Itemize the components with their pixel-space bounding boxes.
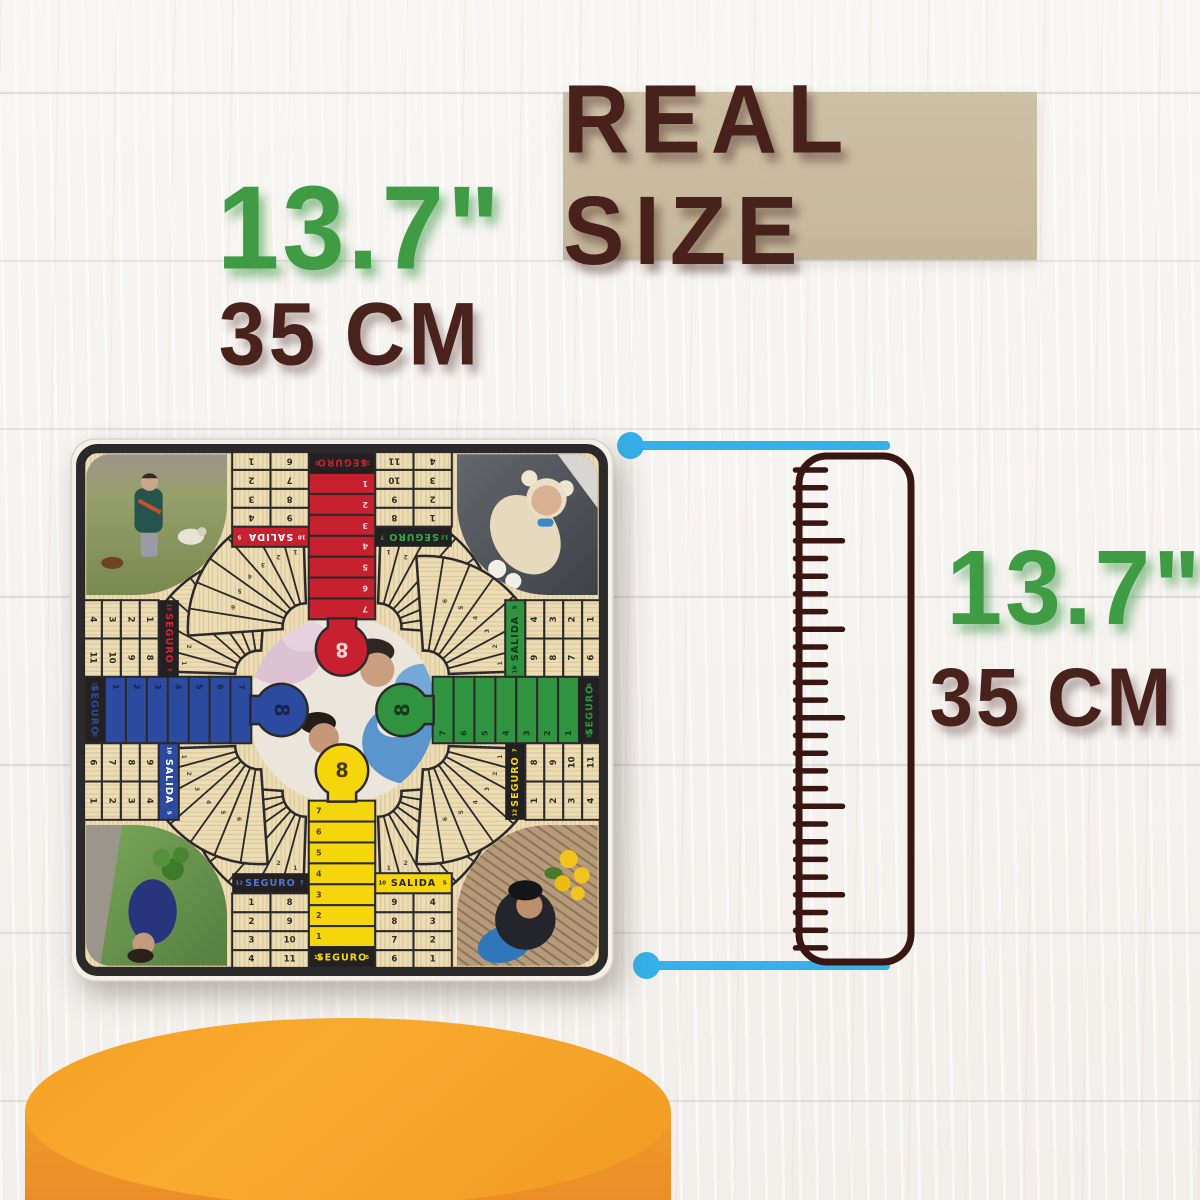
board-label: 2 (248, 474, 254, 484)
board-label: 6 (442, 817, 449, 821)
board-label: 4 (472, 800, 479, 804)
board-label: 5 (315, 459, 319, 465)
board-label: 3 (316, 890, 322, 899)
board-label: 6 (442, 599, 449, 603)
board-label: 1 (248, 898, 254, 908)
board-label: 6 (391, 955, 397, 965)
board-label: 5 (362, 563, 368, 572)
board-label: 2 (316, 911, 322, 920)
board-label: 7 (287, 474, 293, 484)
width-cm-label: 35 CM (200, 289, 500, 378)
board-label: 6 (587, 655, 597, 661)
board-label: 8 (270, 703, 293, 716)
board-label: 8 (125, 759, 135, 765)
board-label: 2 (125, 616, 135, 622)
board-label: 5 (587, 683, 593, 687)
board-label: 1 (497, 755, 504, 759)
board-label: 6 (287, 455, 293, 465)
height-inches-label: 13.7" (925, 535, 1200, 641)
board-label: 2 (568, 616, 578, 622)
board-label: 2 (492, 771, 499, 775)
board-label: 5 (316, 848, 322, 857)
board-label: 1 (316, 932, 322, 941)
board-label: 4 (316, 869, 322, 878)
board-label: 4 (362, 542, 368, 551)
board-label: 7 (106, 759, 116, 765)
board-label: 6 (460, 730, 469, 736)
board-label: 9 (287, 917, 293, 927)
board-label: 8 (530, 759, 540, 765)
board-label: 3 (568, 798, 578, 804)
board-label: 1 (293, 865, 297, 872)
board-label: SEGURO (317, 952, 368, 963)
board-label: 5 (237, 534, 241, 540)
board-label: 5 (458, 606, 465, 610)
podium-graphic (20, 1014, 676, 1200)
board-label: 12 (166, 603, 172, 611)
board-label: 2 (248, 917, 254, 927)
board-label: 9 (144, 759, 154, 765)
board-label: 2 (492, 644, 499, 648)
board-label: 7 (391, 936, 397, 946)
board-label: 8 (391, 703, 414, 716)
board-label: 11 (87, 652, 97, 664)
board-label: 4 (530, 616, 540, 622)
board-label: 7 (380, 534, 384, 540)
board-label: SALIDA (510, 616, 521, 661)
board-label: 3 (549, 616, 559, 622)
board-label: 6 (87, 759, 97, 765)
board-label: 3 (125, 798, 135, 804)
board-label: SEGURO (388, 531, 439, 542)
board-label: 8 (335, 638, 348, 661)
board-label: 9 (125, 655, 135, 661)
product-size-infographic: REAL SIZE 13.7" 35 CM 13.7" 35 CM (0, 0, 1200, 1200)
board-label: 1 (248, 455, 254, 465)
real-size-title: REAL SIZE (563, 65, 1037, 288)
board-label: 1 (430, 955, 436, 965)
board-label: 2 (132, 684, 141, 690)
board-label: 3 (484, 787, 491, 791)
board-label: 3 (193, 787, 200, 791)
board-label: 1 (144, 616, 154, 622)
board-label: 4 (144, 798, 154, 804)
board-label: 1 (111, 684, 120, 690)
board-label: 2 (549, 798, 559, 804)
board-label: 10 (568, 756, 578, 768)
board-label: 3 (362, 521, 368, 530)
board-label: 2 (276, 553, 280, 560)
board-label: 8 (287, 493, 293, 503)
board-label: 7 (362, 604, 368, 613)
board-label: 1 (362, 479, 368, 488)
board-label: 8 (391, 512, 397, 522)
board-label: 4 (430, 455, 436, 465)
board-label: 3 (248, 493, 254, 503)
board-label: 7 (166, 668, 172, 672)
board-label: 4 (501, 730, 510, 736)
board-label: 8 (287, 898, 293, 908)
board-label: 1 (587, 616, 597, 622)
board-label: 2 (276, 860, 280, 867)
board-label: 7 (300, 880, 304, 886)
board-label: 9 (391, 898, 397, 908)
board-label: 1 (293, 548, 297, 555)
board-label: 5 (458, 810, 465, 814)
board-label: 4 (248, 573, 252, 580)
board-label: 1 (430, 512, 436, 522)
board-label: 1 (530, 798, 540, 804)
board-label: 1 (180, 755, 187, 759)
board-label: 5 (166, 811, 172, 815)
board-label: 4 (430, 898, 436, 908)
board-label: 1 (564, 730, 573, 736)
board-label: 8 (144, 655, 154, 661)
board-label: 7 (236, 684, 245, 690)
board-label: 3 (106, 616, 116, 622)
board-label: 3 (484, 629, 491, 633)
board-label: 4 (87, 616, 97, 622)
board-label: SALIDA (391, 878, 436, 889)
measure-dot-bottom (633, 952, 660, 979)
board-label: 10 (298, 534, 306, 540)
board-label: 10 (166, 746, 172, 754)
board-label: 5 (512, 605, 518, 609)
board-label: 4 (205, 800, 212, 804)
board-label: 10 (388, 474, 400, 484)
board-label: 2 (106, 798, 116, 804)
measure-dot-top (617, 432, 644, 459)
board-label: SEGURO (584, 685, 595, 736)
board-label: 5 (365, 955, 369, 961)
board-label: SEGURO (163, 613, 174, 664)
parques-board-graphic: 1234561234561234561234561234561234561234… (70, 438, 614, 982)
width-inches-label: 13.7" (205, 169, 515, 288)
board-label: 2 (185, 771, 192, 775)
board-label: 5 (91, 733, 97, 737)
board-label: 6 (235, 817, 242, 821)
board-label: 1 (387, 865, 391, 872)
board-label: 6 (362, 583, 368, 592)
board-label: 5 (480, 730, 489, 736)
board-label: 1 (87, 798, 97, 804)
board-label: 7 (512, 748, 518, 752)
board-label: 2 (430, 493, 436, 503)
board-label: 2 (430, 936, 436, 946)
board-label: 5 (195, 684, 204, 690)
board-label: 2 (543, 730, 552, 736)
board-label: 9 (530, 655, 540, 661)
board-label: 9 (549, 759, 559, 765)
board-label: SEGURO (245, 878, 296, 889)
board-label: 8 (549, 655, 559, 661)
board-label: 4 (472, 616, 479, 620)
board-label: 4 (248, 955, 254, 965)
board-label: 3 (248, 936, 254, 946)
board-label: SEGURO (89, 685, 100, 736)
board-label: 12 (512, 809, 518, 817)
parques-board-photo: 1234561234561234561234561234561234561234… (70, 438, 614, 982)
height-cm-label: 35 CM (902, 656, 1200, 739)
board-label: 1 (387, 548, 391, 555)
board-label: 10 (106, 652, 116, 664)
board-label: 1 (497, 661, 504, 665)
board-label: 1 (180, 661, 187, 665)
board-label: 10 (512, 666, 518, 674)
board-label: 3 (153, 684, 162, 690)
board-label: 4 (174, 684, 183, 690)
board-label: 2 (362, 500, 368, 509)
board-label: 2 (403, 860, 407, 867)
board-label: 11 (388, 455, 400, 465)
board-label: 6 (316, 828, 322, 837)
board-label: 11 (284, 955, 296, 965)
board-label: 3 (430, 474, 436, 484)
board-label: 12 (235, 880, 243, 886)
board-label: 12 (441, 534, 449, 540)
board-label: 5 (443, 880, 447, 886)
board-label: 9 (391, 493, 397, 503)
board-label: 11 (587, 756, 597, 768)
board-label: 7 (316, 807, 322, 816)
board-label: SALIDA (163, 759, 174, 804)
podium-top (25, 1018, 671, 1200)
board-label: 6 (215, 684, 224, 690)
board-label: SALIDA (248, 531, 293, 542)
board-label: 8 (335, 759, 348, 782)
ruler-outline (799, 456, 911, 962)
board-label: 9 (287, 512, 293, 522)
board-label: 10 (378, 880, 386, 886)
real-size-panel: REAL SIZE (563, 92, 1037, 260)
ruler-ticks (796, 470, 843, 948)
board-label: 3 (430, 917, 436, 927)
board-label: SEGURO (510, 756, 521, 807)
board-label: 3 (261, 561, 265, 568)
ruler-graphic (780, 446, 930, 972)
board-label: SEGURO (317, 457, 368, 468)
board-label: 10 (284, 936, 296, 946)
board-label: 6 (231, 603, 235, 610)
board-label: 4 (248, 512, 254, 522)
board-label: 4 (587, 798, 597, 804)
board-label: 8 (391, 917, 397, 927)
board-label: 2 (185, 644, 192, 648)
board-label: 2 (403, 553, 407, 560)
board-label: 5 (219, 810, 226, 814)
board-label: 5 (238, 587, 242, 594)
board-label: 7 (439, 730, 448, 736)
board-label: 7 (568, 655, 578, 661)
board-label: 3 (522, 730, 531, 736)
